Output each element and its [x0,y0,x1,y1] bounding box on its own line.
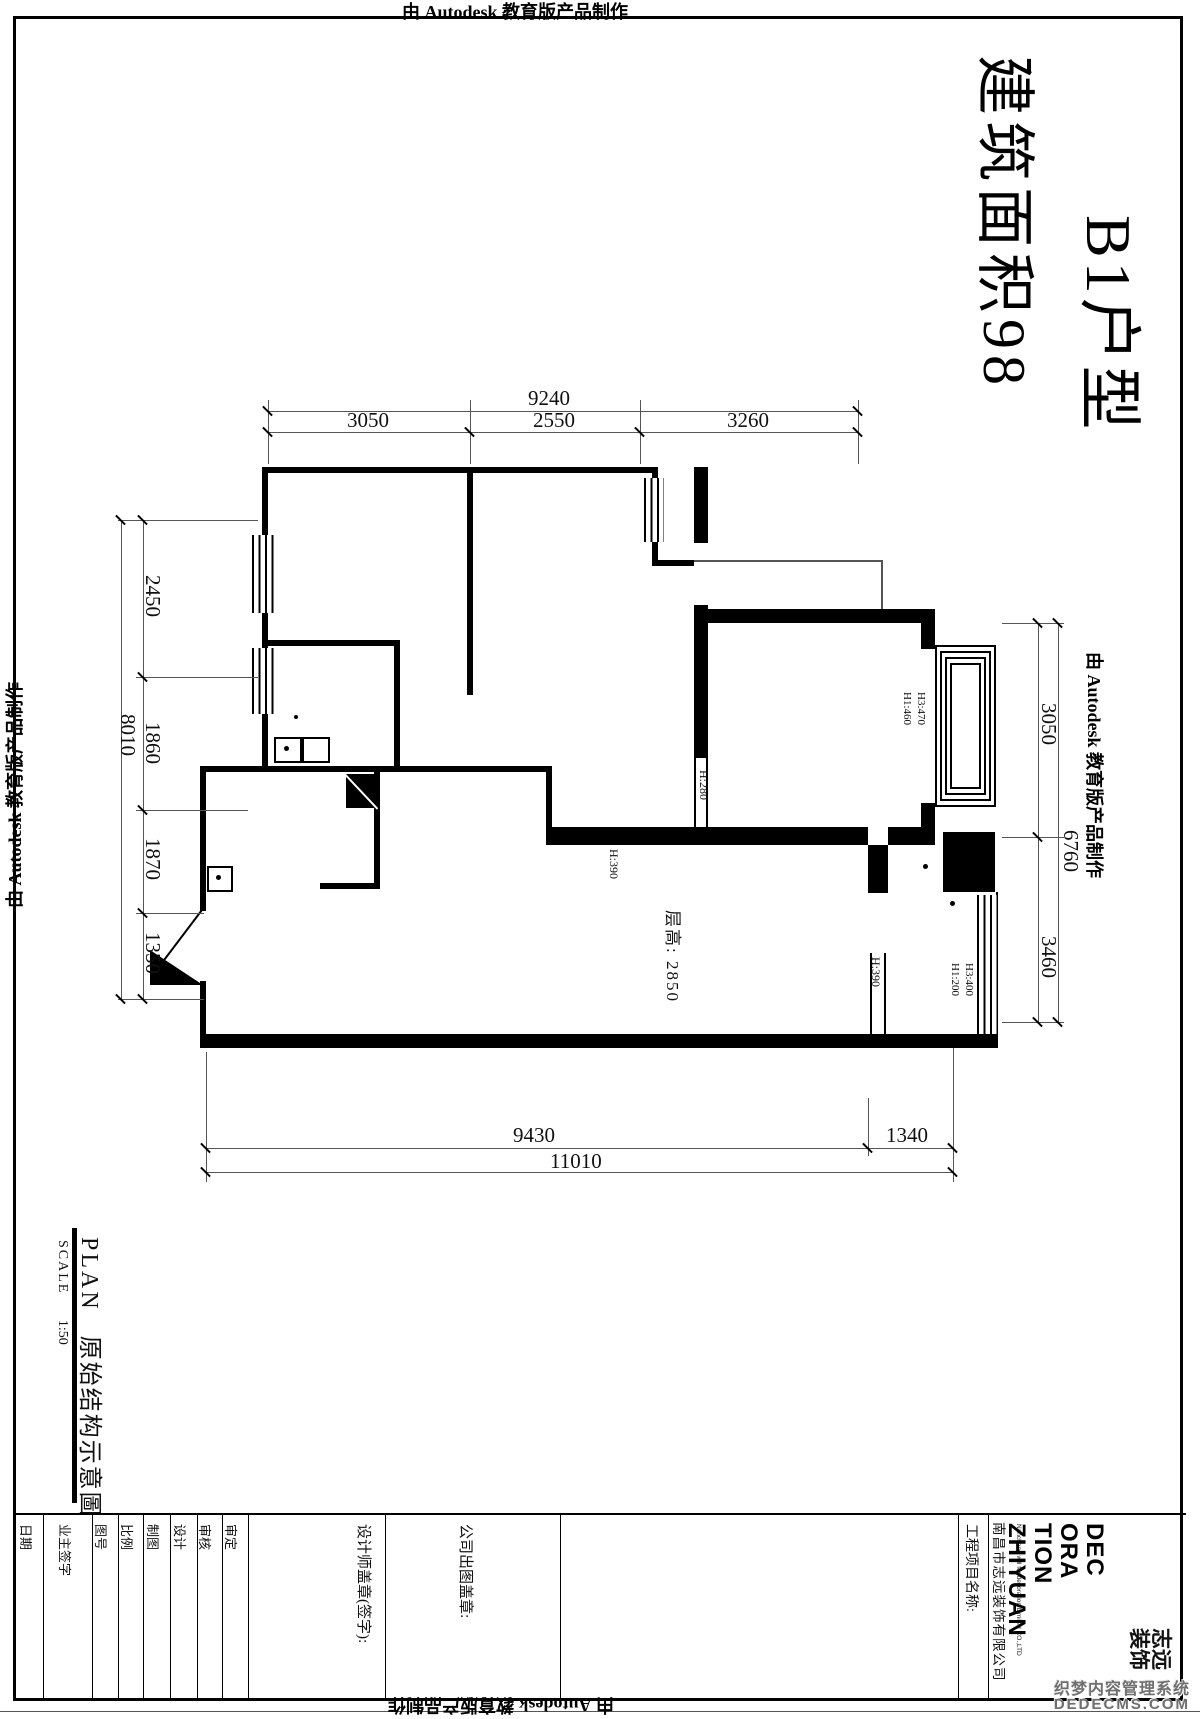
kitchen-sink [302,737,330,763]
logo-line: TION [1029,1523,1055,1637]
autodesk-watermark-left: 由 Autodesk 教育版产品制作 [1,682,27,908]
dim-value: 3050 [347,408,389,433]
field-owner-sign: 业主签字 [56,1524,75,1576]
dim-value: 9430 [513,1123,555,1148]
neighbor-outline [881,560,883,609]
plan-caption-zh: 原始结构示意圖 [76,1336,102,1518]
wall [888,827,935,845]
wall [921,609,935,649]
company-logo-zh: 志远 装饰 [1128,1628,1172,1670]
scale-value: 1:50 [55,1320,70,1345]
beam-height-label: H:390 [606,849,621,879]
scale-label: SCALE [55,1240,70,1294]
dim-value: 1860 [140,722,165,764]
window-symbol [252,648,274,714]
wall [694,605,708,758]
logo-zh-line: 志远 [1150,1628,1172,1670]
dim-value: 3260 [727,408,769,433]
wall [546,766,552,845]
dim-value: 8010 [115,714,140,756]
field-checked-by: 审核 [196,1524,215,1550]
window-height-label: H3:400 [963,963,975,996]
designer-seal-label: 设计师盖章(签字): [354,1524,375,1643]
field-date: 日期 [17,1524,36,1550]
ceiling-height-label: 层高: 2850 [662,910,687,1003]
autodesk-watermark-right: 由 Autodesk 教育版产品制作 [1082,652,1108,878]
wall [262,467,268,772]
balcony-door-line [884,953,886,1034]
window-symbol [252,535,274,613]
beam-height-label: H:390 [868,957,883,987]
wall [394,640,400,766]
wall [200,981,206,1040]
fixture-dot [216,875,221,880]
company-logo: DEC ORA TION ZHIYUAN [1003,1523,1107,1637]
dim-value: 2450 [140,575,165,617]
fixture-dot [284,746,289,751]
window-height-label: H3:470 [915,692,927,725]
wall [467,467,473,695]
dim-value: 11010 [550,1149,602,1174]
dim-value: 2550 [533,408,575,433]
field-scale: 比例 [118,1524,137,1550]
wall [694,467,708,543]
window-symbol-balcony [977,895,998,1034]
bay-window-frame [950,663,981,789]
dim-line-left-overall [121,520,122,999]
autodesk-watermark-bottom: 由 Autodesk 教育版产品制作 [388,1693,614,1719]
autodesk-watermark-top: 由 Autodesk 教育版产品制作 [402,0,628,24]
wall [268,640,400,646]
field-drawing-no: 图号 [92,1524,111,1550]
fixture-dot [923,864,928,869]
logo-line: ORA [1055,1523,1081,1637]
sheet-title-line1: B1户型 [1068,215,1160,434]
wall [262,467,658,473]
dim-value: 6760 [1058,830,1083,872]
logo-line: DEC [1081,1523,1107,1637]
logo-line: ZHIYUAN [1003,1523,1029,1637]
wall [708,609,935,623]
plan-caption-en: PLAN [76,1237,102,1312]
window-height-label: H1:460 [901,692,913,725]
field-drafted-by: 制图 [144,1524,163,1550]
field-approved-by: 审定 [222,1524,241,1550]
wall [658,560,694,566]
cms-watermark-zh: 织梦内容管理系统 [1054,1682,1190,1697]
dim-value: 1870 [140,838,165,880]
window-height-label: H1:200 [949,963,961,996]
fixture-dot [294,715,298,719]
wall [200,766,206,911]
dim-value: 1350 [140,932,165,974]
cms-watermark-en: DEDECMS.COM [1054,1697,1190,1712]
titleblock-top-border [13,1513,1186,1515]
wall [552,827,868,845]
dim-value: 1340 [886,1123,928,1148]
logo-zh-line: 装饰 [1128,1628,1150,1670]
neighbor-outline [694,560,883,562]
wall [200,1034,998,1048]
company-seal-label: 公司出图盖章: [456,1524,477,1618]
project-name-label: 工程项目名称: [962,1524,982,1612]
field-designed-by: 设计 [171,1524,190,1550]
cms-watermark: 织梦内容管理系统 DEDECMS.COM [1054,1682,1190,1712]
wall [320,883,380,889]
blueprint-sheet: { "edges": { "autodesk_mark": "由 Autodes… [0,0,1200,1717]
window-symbol [644,478,664,542]
column-fill [943,832,995,892]
dim-line-right-overall [1058,623,1059,1022]
fixture-dot [950,901,955,906]
beam-height-label: H:280 [696,770,711,800]
sheet-title-line2: 建筑面积98 [966,55,1053,391]
wall-stub [868,845,888,893]
